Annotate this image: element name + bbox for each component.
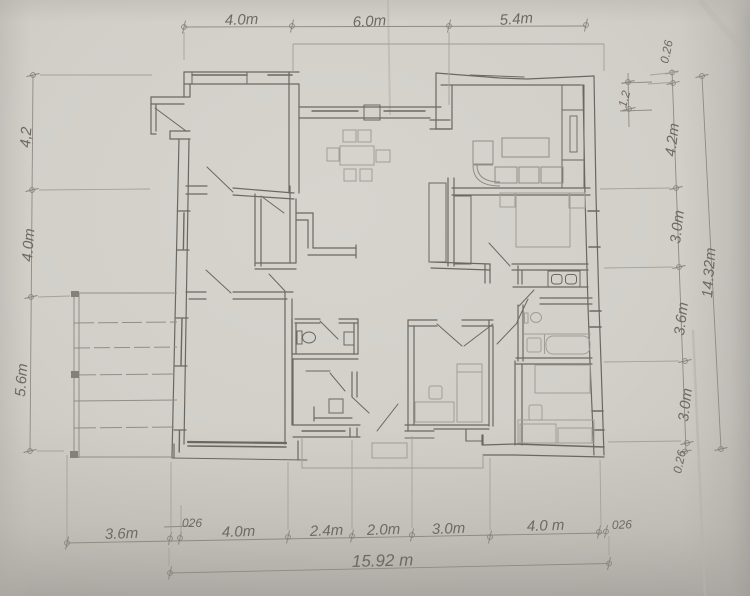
svg-text:4.0m: 4.0m (225, 11, 259, 29)
svg-text:026: 026 (612, 517, 633, 532)
svg-text:026: 026 (182, 516, 202, 530)
svg-text:4.0m: 4.0m (19, 228, 38, 262)
svg-text:5.4m: 5.4m (499, 10, 533, 29)
svg-text:5.6m: 5.6m (12, 363, 31, 397)
svg-text:3.0m: 3.0m (432, 520, 466, 538)
svg-text:4.0m: 4.0m (222, 523, 256, 541)
svg-text:15.92 m: 15.92 m (352, 550, 414, 571)
svg-text:4,2: 4,2 (17, 126, 35, 149)
svg-text:4.0 m: 4.0 m (527, 517, 565, 535)
svg-text:14.32m: 14.32m (699, 247, 719, 298)
svg-text:6.0m: 6.0m (352, 12, 386, 31)
svg-text:2.4m: 2.4m (309, 522, 344, 540)
svg-text:2.0m: 2.0m (366, 521, 401, 539)
svg-text:3.6m: 3.6m (105, 525, 139, 543)
